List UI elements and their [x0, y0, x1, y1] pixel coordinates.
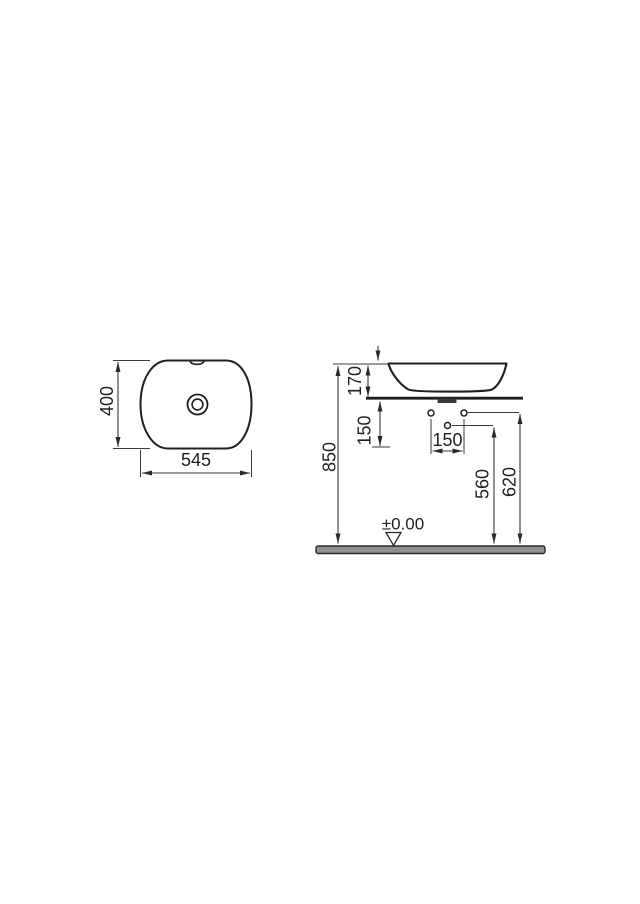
basin-side-view-outline	[389, 364, 507, 392]
datum-label: ±0.00	[382, 515, 424, 534]
drawing-page: 400 545 170 850	[0, 0, 640, 904]
drain-outer-circle	[188, 395, 208, 415]
mid-hole-height-dim-label: 560	[473, 469, 493, 499]
below-counter-dim-label: 150	[355, 415, 375, 445]
technical-drawing-canvas: 400 545 170 850	[0, 0, 640, 904]
floor-bar	[316, 546, 545, 554]
basin-top-view: 400 545	[97, 361, 252, 478]
datum-triangle-icon	[386, 533, 401, 546]
basin-top-view-outline	[141, 361, 252, 449]
basin-height-dim-label: 170	[345, 366, 365, 396]
overflow-hole-icon	[190, 361, 204, 364]
drain-inner-circle	[192, 399, 203, 410]
basin-side-view: 170 850 150 150 620 560	[316, 346, 545, 554]
hole-spacing-dim-label: 150	[432, 430, 462, 450]
drain-tab	[438, 399, 457, 404]
fixing-hole-center	[445, 423, 451, 429]
depth-dim-label: 400	[97, 386, 117, 416]
width-dim-label: 545	[181, 450, 211, 470]
fixing-hole-left	[428, 410, 434, 416]
side-hole-height-dim-label: 620	[500, 467, 520, 497]
fixing-hole-right	[461, 410, 467, 416]
counter-height-dim-label: 850	[320, 442, 340, 472]
